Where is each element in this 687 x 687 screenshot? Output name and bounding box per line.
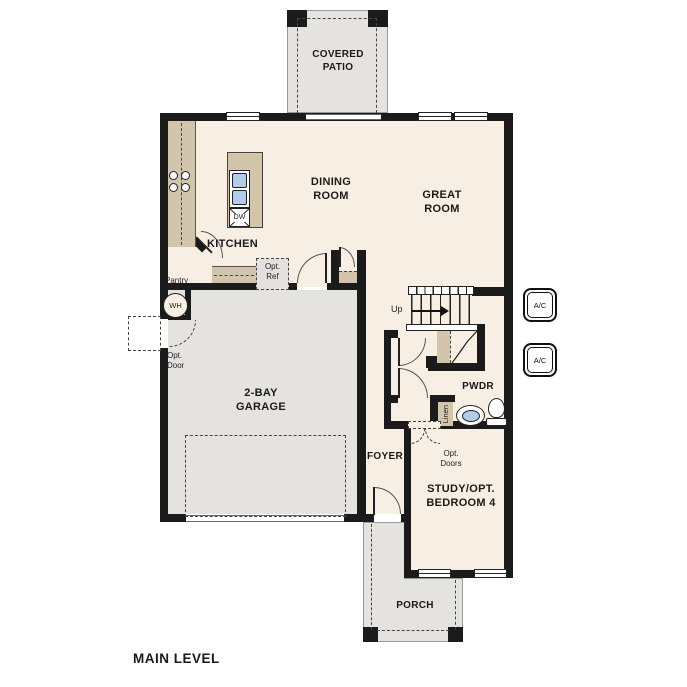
window-study-2 [474, 569, 507, 578]
room-label-dining: DINING ROOM [300, 175, 362, 204]
ac-unit-1-inner: A/C [527, 292, 553, 318]
sink-bowl-top [232, 173, 247, 188]
ac-unit-2: A/C [523, 343, 557, 377]
pwdr-sink-bowl [462, 410, 480, 422]
understair-diagonal [450, 329, 479, 365]
cooktop-icon [181, 171, 190, 180]
opt-door-box [128, 316, 161, 351]
window-great-room-1 [418, 112, 452, 121]
wh-label: WH [163, 301, 188, 310]
pantry-label: Pantry [165, 276, 188, 286]
stair-railing [408, 286, 474, 295]
plan-title: MAIN LEVEL [133, 650, 220, 668]
hall-wall-right [472, 287, 504, 296]
patio-slider-door [306, 114, 381, 120]
opt-door-label: Opt. Door [167, 351, 195, 370]
vestibule-stub-mid [384, 395, 398, 403]
hall-closet-door-leaf [398, 338, 400, 366]
room-label-kitchen: KITCHEN [207, 237, 283, 251]
room-label-great: GREAT ROOM [410, 188, 474, 217]
ac-label-2: A/C [534, 356, 547, 365]
kitchen-counter-bottom-centerline [214, 275, 254, 276]
wall-bottom-garage-left [160, 514, 186, 522]
room-label-foyer: FOYER [364, 450, 406, 463]
room-label-porch: PORCH [385, 599, 445, 612]
cooktop-icon [169, 183, 178, 192]
understair-shelf [437, 331, 450, 363]
opt-doors-opening [408, 421, 441, 429]
study-wall-left [404, 421, 411, 578]
window-great-room-2 [454, 112, 488, 121]
front-door-leaf [373, 487, 375, 515]
cooktop-icon [169, 171, 178, 180]
room-label-study: STUDY/OPT. BEDROOM 4 [413, 482, 509, 511]
garage-entry-door-leaf [325, 253, 327, 283]
room-label-pwdr: PWDR [453, 380, 503, 393]
up-arrow [412, 310, 442, 312]
window-dining [226, 112, 260, 121]
toilet-tank [486, 418, 507, 426]
pwdr-door-leaf [398, 368, 400, 398]
vestibule-stub-top [384, 330, 398, 338]
garage-door-dashed-outline [185, 435, 346, 517]
ac-unit-2-inner: A/C [527, 347, 553, 373]
dishwasher-label: DW [232, 214, 247, 222]
wall-left [160, 113, 168, 522]
coat-closet-door-leaf [339, 247, 341, 267]
sink-bowl-bottom [232, 190, 247, 205]
cooktop-icon [181, 183, 190, 192]
ac-label-1: A/C [534, 301, 547, 310]
up-arrow-head [441, 306, 449, 316]
linen-label: Linen [441, 405, 450, 423]
closet-wall-left [331, 250, 339, 286]
porch-dashed-left [371, 524, 372, 630]
opt-door-wall-gap [160, 319, 168, 348]
toilet-icon [488, 398, 505, 418]
floor-plan: COVERED PATIO PORCH [0, 0, 687, 687]
garage-wall-right [357, 250, 366, 522]
porch-dashed-bottom [377, 630, 449, 631]
coat-closet-shelf [339, 271, 357, 283]
room-label-covered-patio: COVERED PATIO [302, 48, 374, 74]
ac-unit-1: A/C [523, 288, 557, 322]
porch-slab-left [363, 522, 404, 642]
room-label-garage: 2-BAY GARAGE [221, 386, 301, 415]
opt-ref-label: Opt. Ref [258, 262, 287, 281]
porch-dashed-right [455, 580, 456, 630]
dishwasher-icon: DW [229, 208, 250, 227]
opt-doors-label: Opt. Doors [434, 449, 468, 468]
up-label: Up [391, 304, 403, 315]
vestibule-wall-left [384, 330, 391, 421]
linen-wall-top [430, 395, 455, 402]
window-study-1 [418, 569, 451, 578]
